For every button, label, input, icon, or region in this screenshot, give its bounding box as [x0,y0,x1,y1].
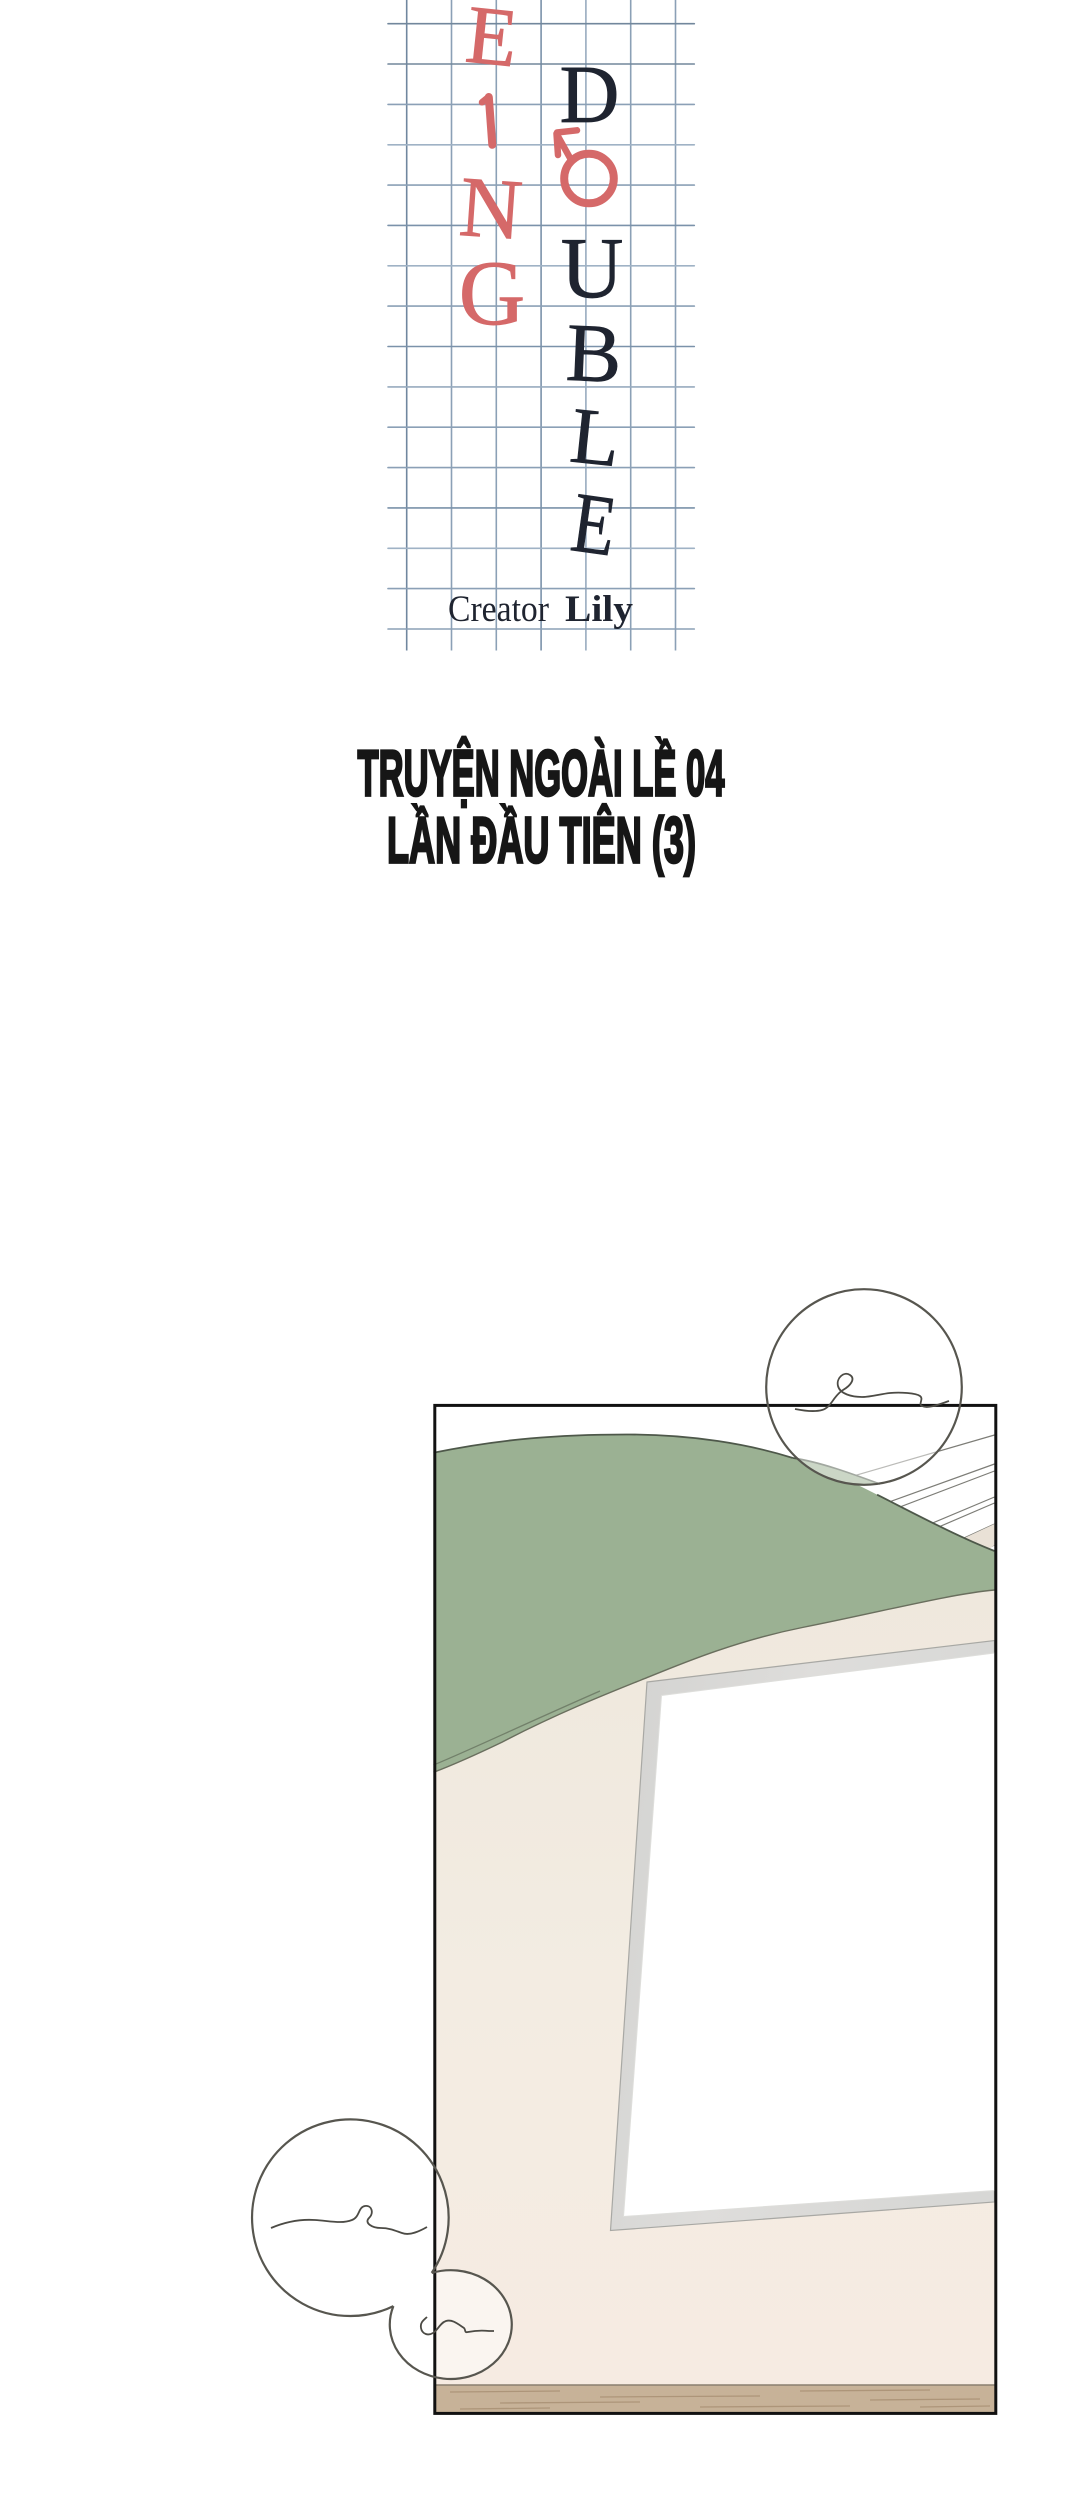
svg-text:G: G [459,242,525,344]
svg-text:U: U [561,219,624,316]
svg-text:Creator: Creator [448,589,549,630]
svg-text:E: E [462,0,522,84]
svg-text:B: B [564,306,623,400]
svg-text:E: E [566,475,622,575]
svg-text:TRUYỆN NGOÀI LỀ 04: TRUYỆN NGOÀI LỀ 04 [358,737,725,810]
svg-text:L: L [566,392,624,485]
svg-text:LẦN ĐẦU TIÊN (3): LẦN ĐẦU TIÊN (3) [387,804,696,877]
svg-text:Lily: Lily [565,589,634,630]
svg-text:D: D [560,48,620,140]
